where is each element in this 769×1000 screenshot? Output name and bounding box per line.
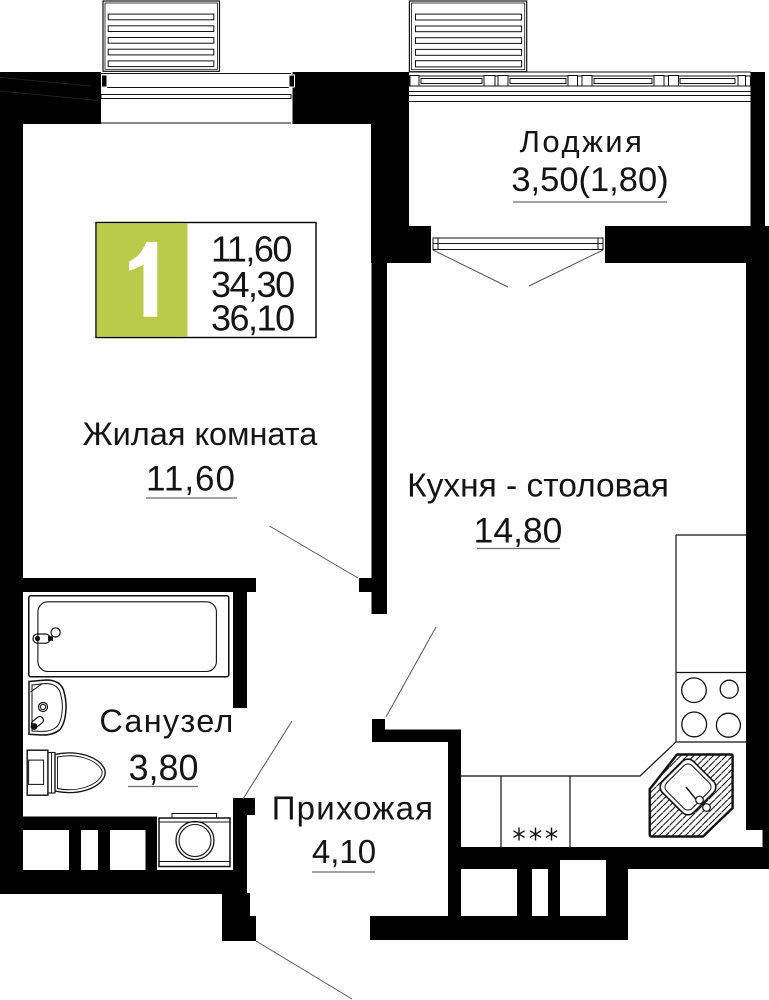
svg-text:14,80: 14,80 <box>474 511 563 551</box>
svg-text:Кухня - столовая: Кухня - столовая <box>407 468 669 505</box>
svg-text:4,10: 4,10 <box>312 833 376 870</box>
svg-text:Жилая комната: Жилая комната <box>83 416 319 452</box>
svg-text:Прихожая: Прихожая <box>272 790 435 827</box>
svg-text:36,10: 36,10 <box>211 298 294 339</box>
svg-text:Лоджия: Лоджия <box>520 124 645 159</box>
svg-text:3,80: 3,80 <box>128 747 198 788</box>
svg-text:3,50(1,80): 3,50(1,80) <box>511 161 668 199</box>
svg-text:11,60: 11,60 <box>146 460 236 499</box>
svg-text:Санузел: Санузел <box>99 703 234 739</box>
